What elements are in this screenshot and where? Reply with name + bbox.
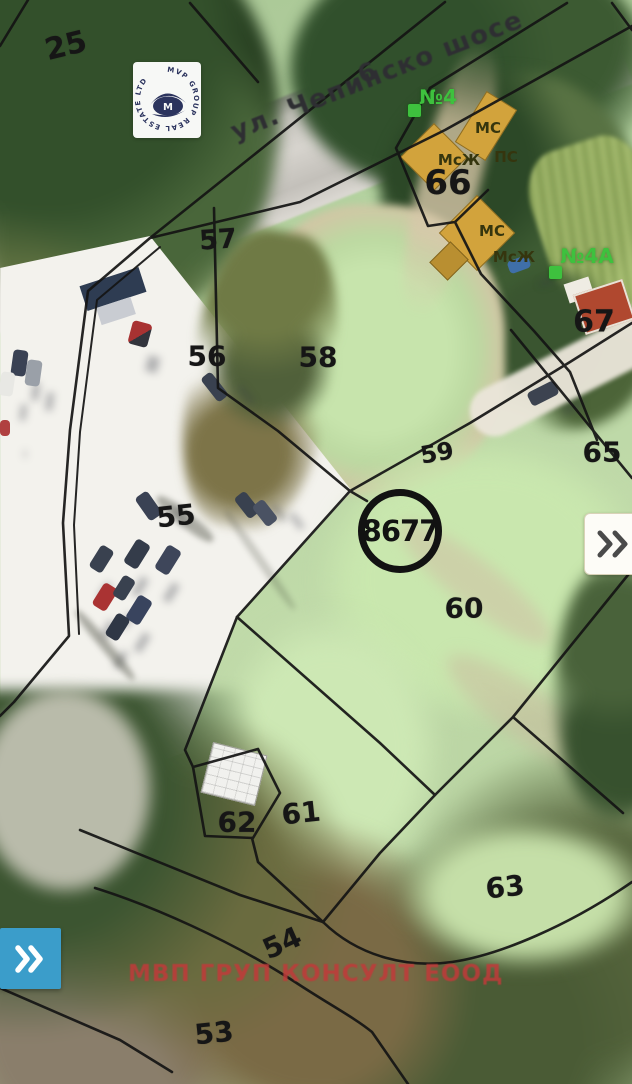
building-type-label: МсЖ	[493, 248, 535, 266]
map-viewport[interactable]: ул. Чепинско шосе 6 25575658555960626163…	[0, 0, 632, 1084]
parcel-number-63: 63	[484, 869, 526, 906]
expand-panel-right-button[interactable]	[584, 513, 632, 575]
building-type-label: МсЖ	[438, 151, 480, 169]
building-type-label: ПС	[494, 148, 518, 166]
parcel-number-61: 61	[280, 795, 322, 832]
address-marker-label: №4А	[560, 244, 613, 268]
parcel-labels-layer: 255756585559606261635453656667МСПСМсЖМСМ…	[0, 0, 632, 1084]
parcel-number-62: 62	[218, 806, 257, 839]
parcel-number-55: 55	[155, 498, 197, 535]
parcel-number-58: 58	[299, 341, 338, 374]
parcel-number-53: 53	[193, 1015, 235, 1052]
parcel-number-57: 57	[198, 223, 238, 257]
double-chevron-right-icon	[596, 530, 632, 558]
highlighted-plot-number: 8677	[362, 514, 439, 548]
agency-logo-watermark: MVP GROUP REAL ESTATE LTD M	[133, 62, 201, 138]
building-type-label: МС	[475, 119, 501, 137]
double-chevron-right-icon	[14, 944, 48, 974]
parcel-number-59: 59	[418, 436, 456, 469]
address-marker-label: №4	[419, 85, 457, 109]
highlighted-plot-marker: 8677	[358, 489, 442, 573]
parcel-number-56: 56	[188, 340, 227, 373]
expand-panel-bottom-left-button[interactable]	[0, 928, 61, 989]
agency-footer-watermark: МВП ГРУП КОНСУЛТ ЕООД	[128, 961, 504, 987]
logo-monogram: M	[163, 102, 173, 113]
parcel-number-25: 25	[42, 24, 91, 68]
parcel-number-54: 54	[257, 920, 306, 966]
parcel-number-65: 65	[583, 436, 622, 469]
parcel-number-60: 60	[445, 592, 484, 625]
parcel-number-67: 67	[573, 305, 615, 340]
parcel-number-66: 66	[424, 163, 471, 203]
building-type-label: МС	[479, 222, 505, 240]
